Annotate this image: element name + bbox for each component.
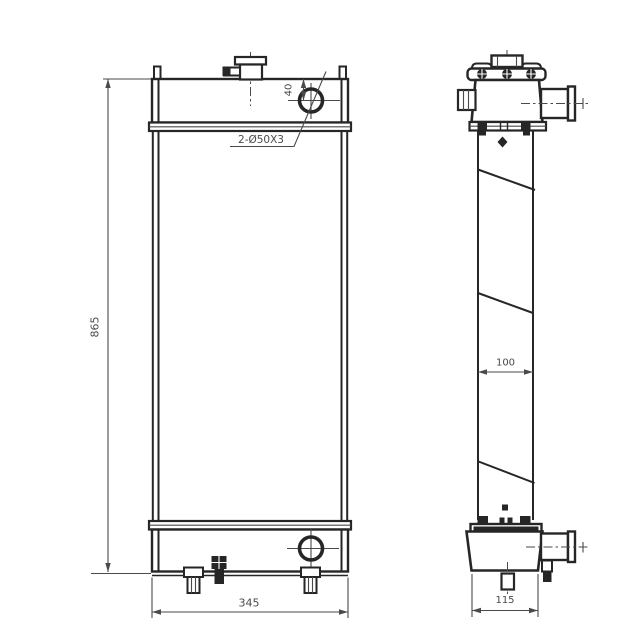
side-bottom-tank — [467, 532, 543, 571]
foot-left-pin — [188, 577, 200, 593]
side-drain-fitting — [542, 561, 552, 572]
filler-cap-top — [235, 57, 266, 65]
filler-cap-neck — [240, 65, 262, 80]
technical-drawing: 40 2-Ø50X3 865 345 — [0, 0, 640, 640]
dim-40-label: 40 — [284, 84, 295, 97]
foot-left-collar — [184, 568, 203, 578]
dim-345-label: 345 — [239, 597, 260, 610]
side-foot-pin — [502, 574, 515, 590]
side-view: 100 115 — [458, 50, 588, 617]
dim-115-label: 115 — [495, 595, 514, 606]
side-core-stud — [502, 505, 508, 511]
side-upper-clamp-stub-right — [523, 131, 530, 136]
side-upper-clamp-bolt-right — [521, 123, 531, 131]
overflow-elbow — [223, 67, 231, 77]
front-view: 40 2-Ø50X3 865 345 — [89, 52, 352, 618]
side-filler-cap — [492, 56, 523, 68]
hole-callout-label: 2-Ø50X3 — [238, 134, 284, 146]
foot-right-pin — [305, 577, 317, 593]
front-core-side-channels — [153, 131, 347, 521]
side-lower-clamp — [471, 516, 542, 533]
dim-865: 865 — [89, 79, 152, 574]
dim-100: 100 — [478, 358, 533, 373]
drain-plug-body — [215, 569, 225, 584]
drawing-canvas: 40 2-Ø50X3 865 345 — [0, 0, 640, 640]
side-left-fitting — [458, 90, 476, 110]
side-drain-plug — [543, 572, 552, 583]
side-core-break-lines — [478, 170, 535, 484]
side-core-weld-diamond — [498, 137, 508, 148]
side-top-tank — [472, 80, 543, 122]
side-core-lines — [478, 131, 533, 521]
side-upper-clamp — [470, 122, 547, 136]
dim-345: 345 — [152, 578, 348, 619]
dim-100-label: 100 — [496, 358, 515, 369]
foot-right-collar — [301, 568, 320, 578]
side-upper-clamp-stub-left — [479, 131, 486, 136]
front-bottom-tank — [152, 530, 348, 572]
side-upper-clamp-bolt-left — [478, 123, 488, 131]
dim-865-label: 865 — [89, 317, 102, 338]
